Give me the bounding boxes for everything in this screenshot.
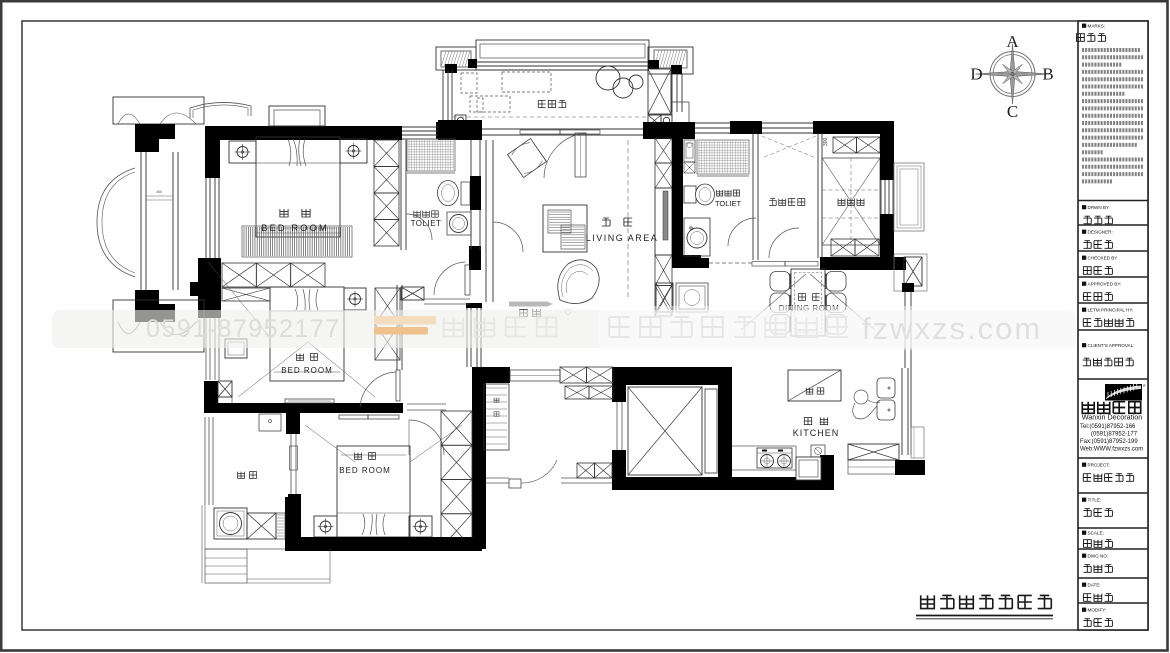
svg-text:Tel:(0591)87952-166: Tel:(0591)87952-166 <box>1080 424 1136 430</box>
svg-text:300: 300 <box>823 137 829 146</box>
svg-text:DATE:: DATE: <box>1088 583 1101 588</box>
svg-text:BED ROOM: BED ROOM <box>261 223 329 234</box>
svg-text:DRWN BY: DRWN BY <box>1088 205 1110 210</box>
svg-text:APPROVED BY:: APPROVED BY: <box>1088 282 1122 287</box>
svg-text:(0591)87952-177: (0591)87952-177 <box>1091 432 1138 438</box>
svg-text:KITCHEN: KITCHEN <box>793 428 840 438</box>
svg-text:fzwxzs.com: fzwxzs.com <box>862 311 1042 346</box>
svg-text:D: D <box>970 65 982 84</box>
svg-text:Web:WWW.fzwxzs.com: Web:WWW.fzwxzs.com <box>1080 447 1143 453</box>
svg-text:CHECKED BY: CHECKED BY <box>1088 256 1118 261</box>
svg-text:Fax:(0591)87952-199: Fax:(0591)87952-199 <box>1080 439 1138 445</box>
svg-text:B: B <box>1042 65 1053 84</box>
svg-text:CLIENT'S APPROVAL:: CLIENT'S APPROVAL: <box>1088 343 1135 348</box>
svg-text:Wanxin Decoration: Wanxin Decoration <box>1082 413 1142 422</box>
svg-text:BED ROOM: BED ROOM <box>339 466 391 475</box>
svg-text:DWG NO:: DWG NO: <box>1088 554 1109 559</box>
svg-text:0591-87952177: 0591-87952177 <box>146 315 341 343</box>
svg-text:SCALE:: SCALE: <box>1088 531 1104 536</box>
svg-text:PROJECT:: PROJECT: <box>1088 463 1110 468</box>
svg-text:TITLE:: TITLE: <box>1088 498 1102 503</box>
svg-text:®: ® <box>1143 384 1146 388</box>
svg-text:TOLIET: TOLIET <box>715 199 742 208</box>
svg-text:MODIFY:: MODIFY: <box>1088 608 1107 613</box>
svg-text:DESIGNER:: DESIGNER: <box>1088 230 1113 235</box>
svg-text:MARKS:: MARKS: <box>1088 24 1106 29</box>
svg-text:450: 450 <box>156 190 162 194</box>
svg-text:LETM PRINCIPAL HY:: LETM PRINCIPAL HY: <box>1088 308 1134 313</box>
svg-text:BED ROOM: BED ROOM <box>281 366 333 375</box>
svg-text:A: A <box>1006 32 1019 51</box>
svg-text:C: C <box>1007 102 1018 121</box>
svg-text:LIVING AREA: LIVING AREA <box>586 233 659 243</box>
